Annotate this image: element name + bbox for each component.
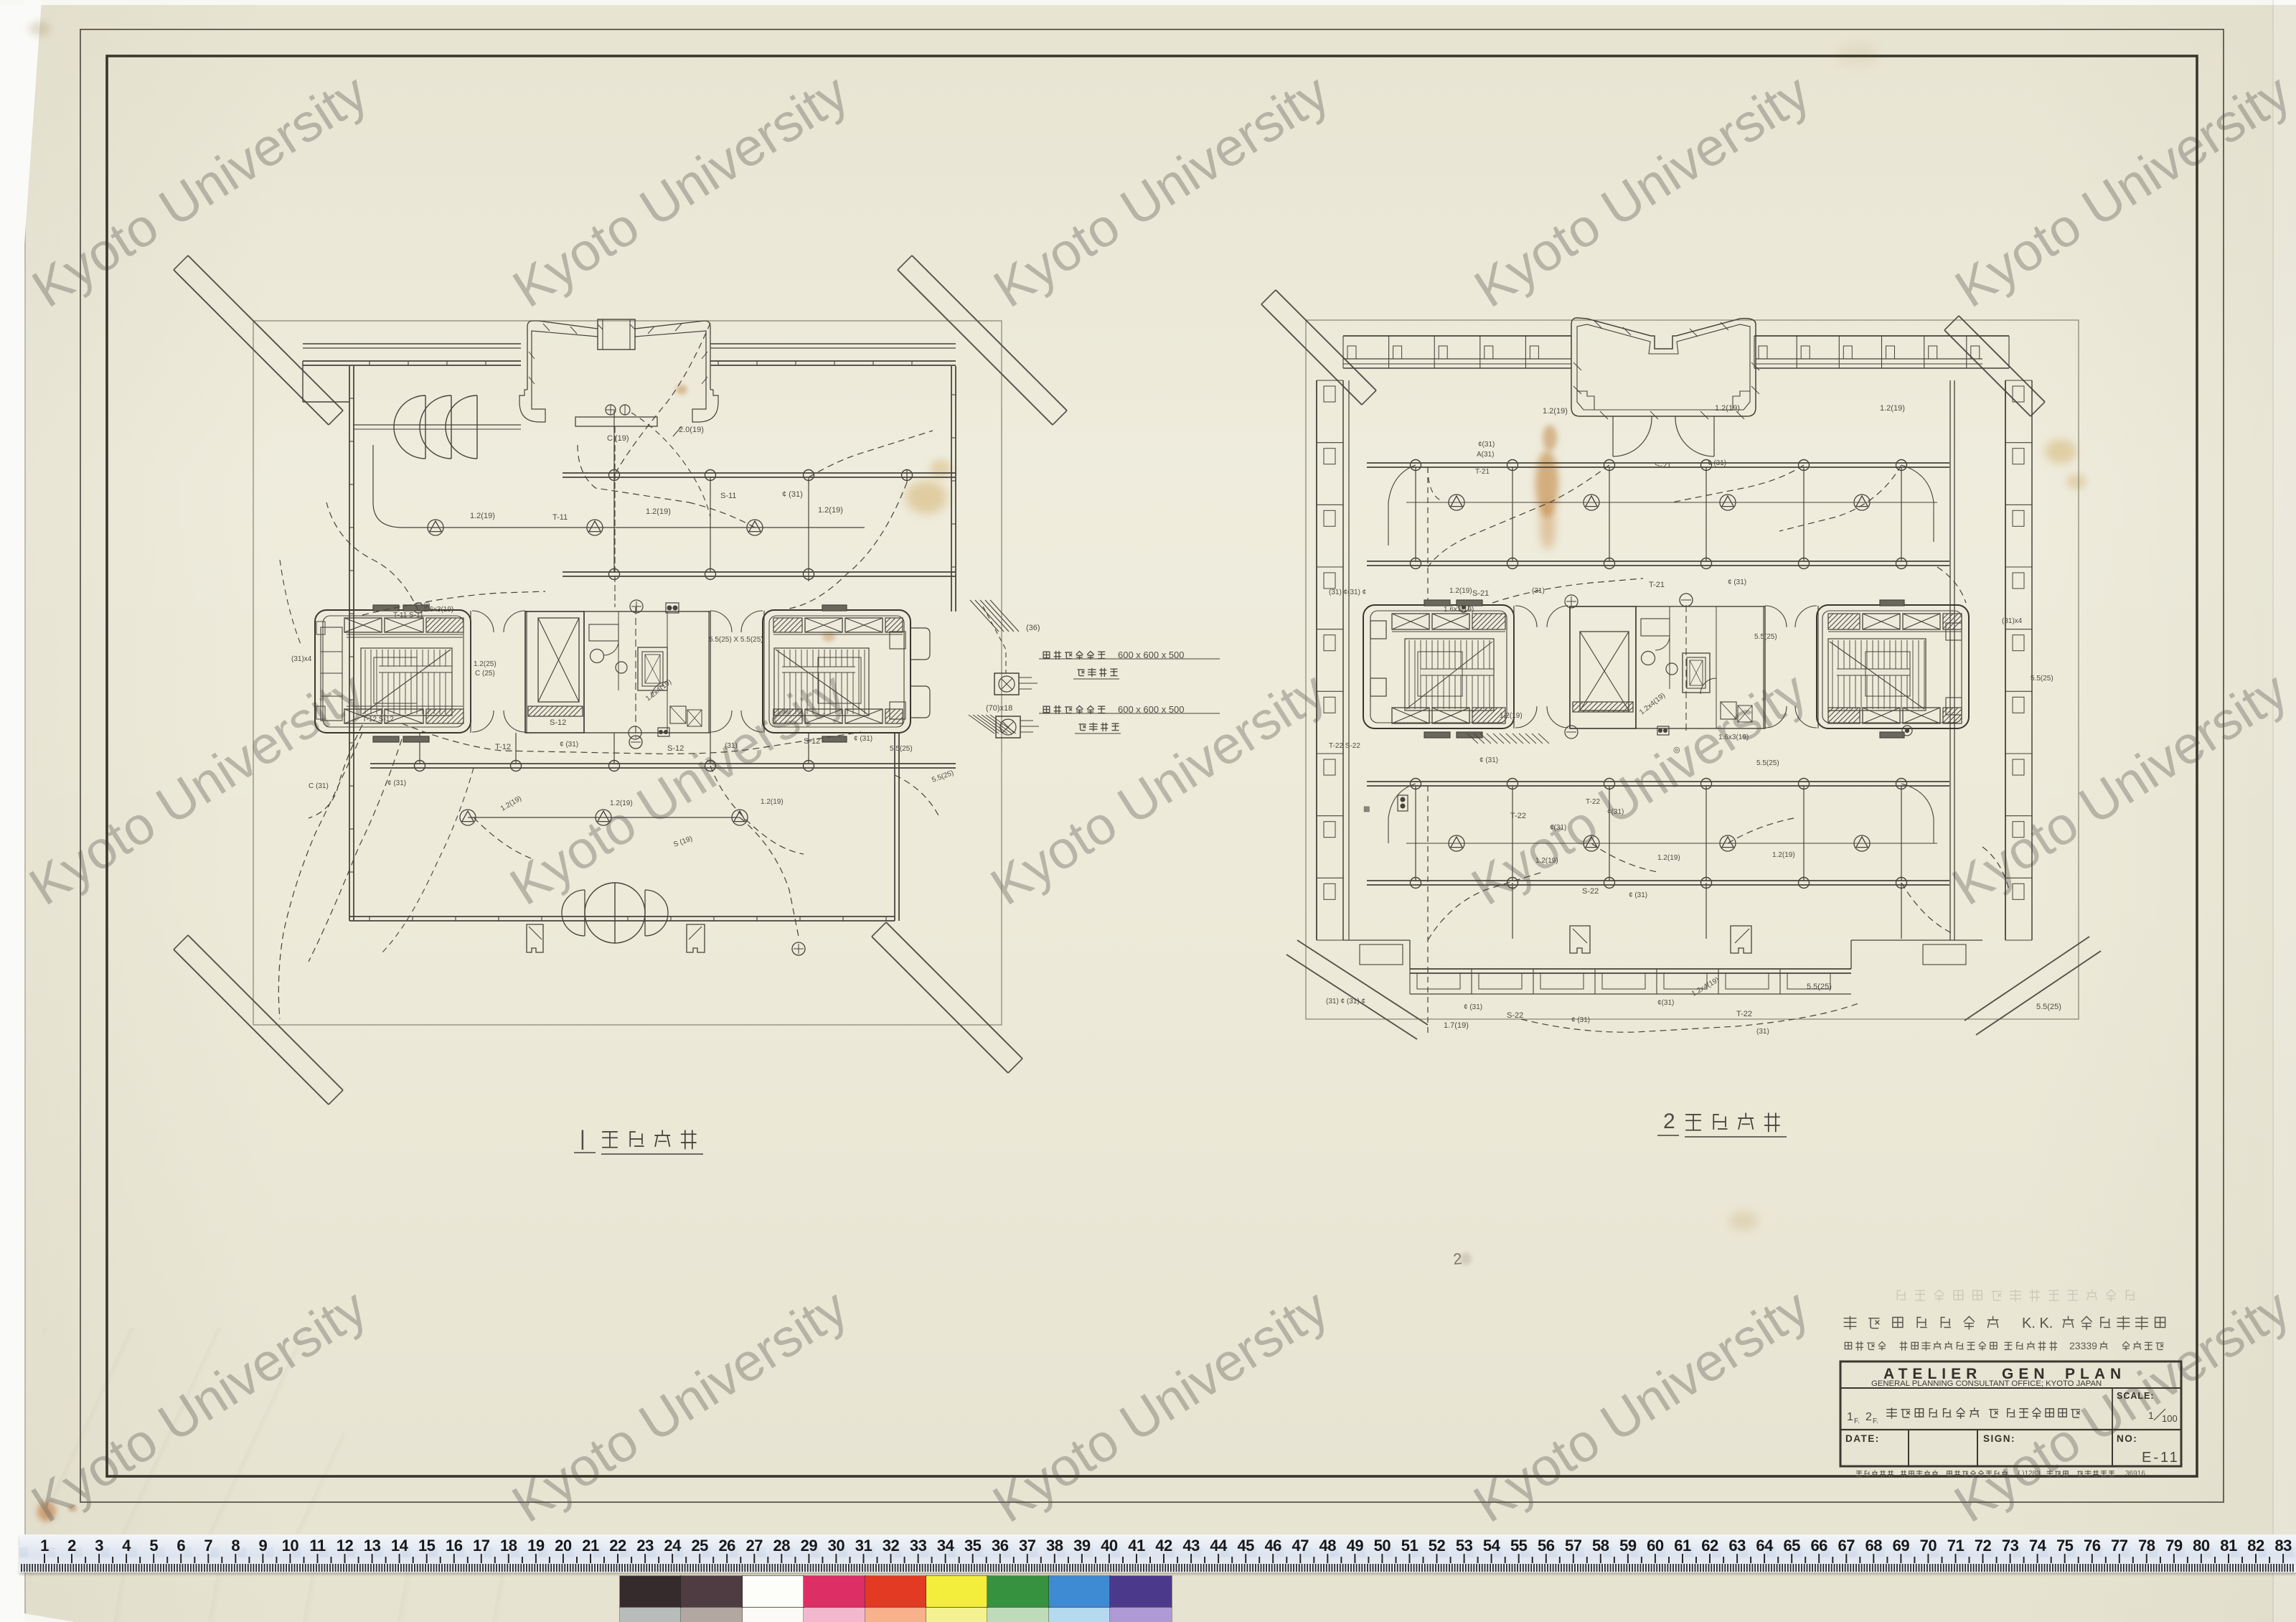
svg-text:¢ (31): ¢ (31): [782, 490, 803, 499]
svg-text:S-12: S-12: [550, 718, 566, 727]
svg-text:1: 1: [2148, 1410, 2154, 1421]
svg-text:S-11: S-11: [720, 492, 736, 500]
svg-text:2: 2: [1865, 1411, 1872, 1423]
svg-text:1.2(19): 1.2(19): [1449, 587, 1472, 595]
svg-text:2: 2: [1663, 1110, 1675, 1133]
svg-text:T-22 S-22: T-22 S-22: [1329, 742, 1360, 750]
svg-text:S-21: S-21: [1655, 461, 1671, 470]
svg-text:( )1283: ( )1283: [2018, 1470, 2041, 1478]
svg-text:◎: ◎: [423, 601, 430, 609]
svg-text:5.5(25): 5.5(25): [890, 745, 913, 753]
svg-text:(36): (36): [1026, 624, 1040, 632]
svg-text:T-11 S-11: T-11 S-11: [393, 611, 424, 619]
svg-text:¢ (31): ¢ (31): [387, 779, 406, 787]
svg-text:1.2(19): 1.2(19): [818, 506, 843, 515]
svg-text:¢ (31): ¢ (31): [1479, 756, 1498, 764]
svg-text:¢ (31): ¢ (31): [1629, 891, 1647, 899]
svg-text:T-11: T-11: [552, 513, 568, 522]
svg-text:S-22: S-22: [1507, 1011, 1523, 1020]
svg-text:600 x 600 x 500: 600 x 600 x 500: [1118, 704, 1185, 715]
svg-text:SIGN:: SIGN:: [1983, 1433, 2015, 1444]
svg-text:1.2(19): 1.2(19): [1500, 712, 1523, 720]
svg-text:2: 2: [1452, 1250, 1462, 1268]
svg-text:GENERAL PLANNING CONSULTANT: GENERAL PLANNING CONSULTANT OFFICE; KYOT…: [1871, 1379, 2102, 1388]
svg-text:(31)x4: (31)x4: [2002, 617, 2023, 625]
svg-text:1.2(19): 1.2(19): [1543, 407, 1568, 416]
svg-text:K. K.: K. K.: [2022, 1316, 2053, 1331]
svg-text:¢ (31): ¢ (31): [1728, 578, 1746, 586]
svg-text:T-21: T-21: [1475, 468, 1490, 476]
svg-text:1.2(19): 1.2(19): [470, 512, 495, 520]
svg-text:¢(31): ¢(31): [1550, 824, 1566, 832]
svg-text:1.2(19): 1.2(19): [1535, 857, 1558, 865]
svg-text:5.5(25): 5.5(25): [931, 769, 955, 784]
svg-text:F.: F.: [1873, 1417, 1878, 1425]
svg-text:1.2(19): 1.2(19): [646, 507, 671, 516]
svg-text:100: 100: [2162, 1413, 2178, 1424]
svg-text:5.5(25): 5.5(25): [2031, 675, 2053, 683]
svg-text:¢ (31): ¢ (31): [560, 741, 578, 749]
svg-text:1.7(19): 1.7(19): [1444, 1021, 1469, 1030]
svg-text:(70)x18: (70)x18: [986, 704, 1012, 713]
svg-text:◎: ◎: [1673, 746, 1680, 754]
svg-text:1.2(19): 1.2(19): [1657, 854, 1680, 862]
svg-text:T-12: T-12: [495, 743, 511, 751]
svg-text:E-11: E-11: [2142, 1450, 2180, 1466]
svg-text:5.5(25): 5.5(25): [1754, 633, 1777, 641]
svg-text:1.6x3(19): 1.6x3(19): [1444, 606, 1474, 614]
svg-text:(31) ¢(31) ¢: (31) ¢(31) ¢: [1329, 589, 1366, 596]
svg-text:(31): (31): [1756, 1028, 1769, 1036]
svg-text:NO:: NO:: [2117, 1433, 2137, 1444]
svg-text:1.2(19): 1.2(19): [1772, 851, 1795, 859]
svg-text:1.2(19): 1.2(19): [610, 800, 633, 807]
svg-text:¢ (31): ¢ (31): [1571, 1016, 1590, 1024]
svg-text:C (25): C (25): [475, 670, 495, 678]
svg-text:S-21: S-21: [1472, 589, 1489, 598]
svg-text:T-21: T-21: [1649, 581, 1665, 589]
svg-text:600 x 600 x 500: 600 x 600 x 500: [1118, 650, 1185, 660]
svg-text:S-12: S-12: [804, 737, 820, 746]
svg-text:T-22: T-22: [1736, 1010, 1752, 1018]
svg-text:(31)x4: (31)x4: [291, 655, 312, 663]
svg-text:T-12 S-12: T-12 S-12: [362, 716, 394, 723]
svg-text:1.6x3(19): 1.6x3(19): [1718, 733, 1749, 741]
svg-text:F.: F.: [1854, 1417, 1860, 1425]
svg-text:S-22: S-22: [1582, 887, 1599, 896]
svg-text:|: |: [580, 1127, 585, 1150]
svg-text:1.2(19): 1.2(19): [1880, 404, 1905, 413]
svg-text:23339: 23339: [2069, 1340, 2097, 1351]
svg-text:(31): (31): [725, 742, 738, 750]
svg-text:DATE:: DATE:: [1845, 1433, 1880, 1444]
svg-text:1.2(19): 1.2(19): [1715, 404, 1740, 413]
svg-text:A(31): A(31): [1477, 451, 1494, 459]
svg-text:1.2x4(19): 1.2x4(19): [1690, 976, 1721, 998]
svg-text:▩: ▩: [1363, 805, 1370, 813]
svg-text:C (19): C (19): [607, 434, 629, 443]
svg-text:¢ (31): ¢ (31): [854, 735, 872, 743]
svg-text:S-12: S-12: [667, 744, 684, 753]
svg-text:¢(31): ¢(31): [1657, 999, 1674, 1007]
svg-text:1: 1: [1847, 1411, 1853, 1423]
svg-text:SCALE:: SCALE:: [2117, 1391, 2155, 1401]
svg-text:C (31): C (31): [309, 782, 329, 790]
svg-text:36916: 36916: [2125, 1470, 2145, 1478]
svg-text:5.5(25) X 5.5(25): 5.5(25) X 5.5(25): [709, 636, 763, 644]
svg-text:(31) ¢ (31) ¢: (31) ¢ (31) ¢: [1326, 998, 1365, 1005]
svg-text:1.2(25): 1.2(25): [474, 660, 497, 668]
svg-text:1.2x4(19): 1.2x4(19): [1638, 692, 1667, 717]
svg-text:T-22: T-22: [1586, 798, 1600, 806]
svg-text:5.5(25): 5.5(25): [1807, 983, 1832, 991]
svg-text:¢(31): ¢(31): [1478, 441, 1495, 449]
svg-text:S (19): S (19): [672, 835, 693, 849]
svg-text:¢ (31): ¢ (31): [1708, 459, 1726, 467]
svg-text:1.2(19): 1.2(19): [499, 794, 523, 812]
svg-text:1.2(19): 1.2(19): [761, 798, 784, 806]
svg-text:¢ (31): ¢ (31): [1464, 1003, 1482, 1011]
svg-text:T-22: T-22: [1510, 812, 1526, 820]
svg-text:2.0(19): 2.0(19): [679, 426, 704, 434]
svg-text:(31): (31): [1532, 587, 1545, 595]
svg-text:¢(31): ¢(31): [1607, 808, 1624, 816]
svg-text:5.5(25): 5.5(25): [2036, 1003, 2061, 1011]
svg-text:5.5(25): 5.5(25): [1756, 759, 1779, 767]
